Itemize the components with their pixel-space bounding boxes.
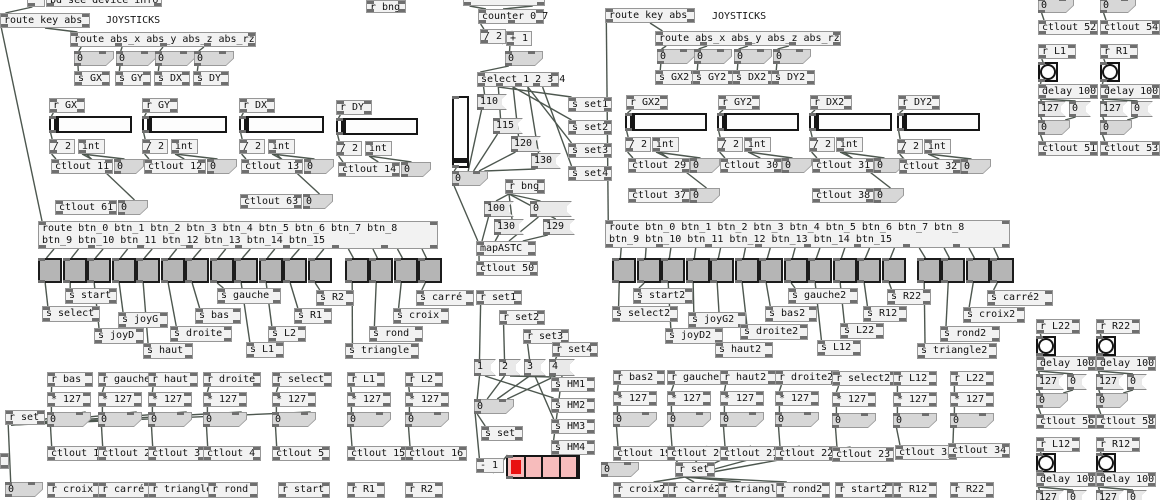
bang-button[interactable]: [1036, 336, 1056, 356]
port-nub: [710, 280, 717, 283]
port-nub: [441, 320, 448, 323]
number-box[interactable]: 0: [203, 412, 247, 427]
patch-cord: [510, 376, 554, 377]
number-value: 0: [406, 413, 448, 426]
port-nub: [273, 289, 280, 292]
toggle[interactable]: [161, 258, 185, 283]
patch-cord: [792, 248, 795, 258]
port-nub: [811, 96, 818, 99]
number-box[interactable]: 0: [734, 49, 772, 64]
toggle[interactable]: [686, 258, 710, 283]
toggle[interactable]: [759, 258, 783, 283]
toggle[interactable]: [710, 258, 734, 283]
bang-button[interactable]: [1100, 62, 1120, 82]
port-nub: [204, 403, 211, 406]
port-nub: [466, 302, 473, 305]
toggle[interactable]: [63, 258, 87, 283]
toggle[interactable]: [283, 258, 307, 283]
patch-cord: [779, 427, 780, 446]
toggle[interactable]: [882, 258, 906, 283]
message-0[interactable]: 0: [530, 201, 572, 217]
port-nub: [612, 280, 619, 283]
object-delay-100: delay 100: [1100, 84, 1160, 99]
patch-cord: [79, 47, 81, 51]
message-label: 0: [531, 202, 571, 216]
port-nub: [210, 258, 217, 261]
hradio-cell[interactable]: [526, 457, 544, 477]
port-nub: [1090, 152, 1097, 155]
slider-knob[interactable]: [722, 115, 727, 129]
send-set3: s set3: [568, 143, 612, 158]
toggle[interactable]: [833, 258, 857, 283]
receive-croix: r croix: [47, 482, 101, 498]
port-nub: [1002, 444, 1009, 447]
port-nub: [398, 1, 405, 4]
bang-circle: [1038, 338, 1054, 354]
port-nub: [986, 494, 993, 497]
port-nub: [92, 318, 99, 321]
horizontal-slider[interactable]: [142, 116, 227, 133]
port-nub: [430, 222, 437, 225]
port-nub: [240, 150, 247, 153]
port-nub: [531, 166, 538, 169]
port-nub: [537, 180, 544, 183]
number-box[interactable]: 0: [775, 412, 819, 427]
number-box[interactable]: 0: [601, 462, 639, 477]
port-nub: [868, 393, 875, 396]
port-nub: [479, 10, 486, 13]
port-nub: [240, 99, 247, 102]
toggle[interactable]: [941, 258, 965, 283]
object-ctlout-15: ctlout 15: [347, 446, 409, 461]
port-nub: [1100, 114, 1107, 117]
horizontal-slider[interactable]: [625, 113, 707, 131]
object-ctlout-5: ctlout 5: [272, 446, 330, 461]
port-nub: [899, 318, 906, 321]
port-nub: [155, 51, 162, 54]
port-nub: [234, 258, 241, 261]
number-box[interactable]: 0: [116, 51, 156, 66]
patch-cord: [778, 46, 789, 49]
object-127: * 127: [950, 392, 994, 407]
port-nub: [136, 340, 143, 343]
object-delay-100: delay 100: [1036, 472, 1096, 487]
port-nub: [733, 71, 740, 74]
port-nub: [1130, 45, 1137, 48]
port-nub: [833, 393, 840, 396]
object-ctlout-13: ctlout 13: [241, 159, 303, 174]
port-nub: [204, 383, 211, 386]
receive-r1: r R1: [347, 482, 385, 498]
horizontal-slider[interactable]: [717, 113, 799, 131]
toggle[interactable]: [808, 258, 832, 283]
port-nub: [885, 483, 892, 486]
port-nub: [194, 72, 201, 75]
port-nub: [1148, 483, 1155, 486]
toggle[interactable]: [234, 258, 258, 283]
port-nub: [1037, 415, 1044, 418]
patch-cord: [484, 169, 535, 171]
port-nub: [613, 424, 620, 427]
patch-cord: [1098, 371, 1133, 374]
number-box[interactable]: 0: [613, 412, 657, 427]
port-nub: [511, 136, 518, 139]
port-nub: [39, 222, 46, 225]
port-nub: [941, 280, 948, 283]
port-nub: [543, 219, 550, 222]
toggle[interactable]: [661, 258, 685, 283]
port-nub: [923, 301, 930, 304]
send-dy: s DY: [193, 71, 229, 86]
port-nub: [897, 113, 904, 116]
object-127: * 127: [405, 392, 449, 407]
object-ctlout-19: ctlout 19: [613, 446, 675, 461]
port-nub: [661, 280, 668, 283]
port-nub: [796, 49, 803, 52]
port-nub: [637, 280, 644, 283]
receive-bng: r bng: [366, 0, 406, 13]
port-nub: [210, 280, 217, 283]
port-nub: [304, 159, 311, 162]
port-nub: [929, 403, 936, 406]
hradio-cell[interactable]: [561, 457, 579, 477]
hradio-selector[interactable]: [506, 455, 580, 479]
number-box[interactable]: 0: [720, 412, 764, 427]
toggle[interactable]: [735, 258, 759, 283]
port-nub: [989, 355, 996, 358]
port-nub: [182, 72, 189, 75]
toggle[interactable]: [185, 258, 209, 283]
port-nub: [1090, 95, 1097, 98]
send-l1: s L1: [246, 342, 284, 358]
number-box[interactable]: 0: [667, 412, 711, 427]
port-nub: [707, 473, 714, 476]
patch-cord: [169, 249, 176, 258]
number-box[interactable]: 0: [74, 51, 114, 66]
port-nub: [925, 150, 932, 153]
toggle[interactable]: [418, 258, 442, 283]
port-nub: [218, 289, 225, 292]
send-triangle: s triangle: [345, 343, 419, 359]
number-value: 0: [273, 413, 315, 426]
port-nub: [686, 258, 693, 261]
port-nub: [464, 2, 471, 5]
toggle[interactable]: [990, 258, 1014, 283]
port-nub: [738, 313, 745, 316]
port-nub: [893, 413, 900, 416]
port-nub: [1097, 425, 1104, 428]
port-nub: [115, 43, 122, 46]
port-nub: [809, 128, 816, 131]
toggle[interactable]: [784, 258, 808, 283]
port-nub: [720, 424, 727, 427]
port-nub: [478, 73, 485, 76]
slider-knob[interactable]: [902, 115, 907, 129]
port-nub: [170, 99, 177, 102]
number-box[interactable]: 0: [148, 412, 192, 427]
object-ctlout-3: ctlout 3: [148, 446, 206, 461]
port-nub: [119, 313, 126, 316]
port-nub: [143, 99, 150, 102]
patch-cord: [160, 47, 163, 51]
port-nub: [317, 302, 324, 305]
port-nub: [776, 381, 783, 384]
toggle[interactable]: [345, 258, 369, 283]
number-box[interactable]: 0: [155, 51, 195, 66]
port-nub: [689, 324, 696, 327]
object-ctlout-1: ctlout 1: [47, 446, 105, 461]
port-nub: [1090, 142, 1097, 145]
port-nub: [989, 344, 996, 347]
port-nub: [221, 82, 228, 85]
number-box[interactable]: 0: [347, 412, 391, 427]
send-set4: s set4: [568, 166, 612, 181]
port-nub: [370, 327, 377, 330]
object-127: * 127: [203, 392, 247, 407]
port-nub: [755, 244, 762, 247]
port-nub: [190, 373, 197, 376]
receive-r12: r R12: [1096, 437, 1140, 452]
send-l22: s L22: [840, 323, 884, 339]
bang-button[interactable]: [1038, 62, 1058, 82]
number-box[interactable]: 0: [474, 399, 514, 414]
object-ctlout-52: ctlout 52: [1038, 20, 1098, 35]
slider-knob[interactable]: [454, 158, 467, 163]
send-select: s select: [42, 306, 100, 322]
toggle[interactable]: [637, 258, 661, 283]
port-nub: [224, 338, 231, 341]
port-nub: [896, 446, 903, 449]
number-box[interactable]: 0: [98, 412, 142, 427]
hradio-cell[interactable]: [508, 457, 526, 477]
port-nub: [1037, 473, 1044, 476]
horizontal-slider[interactable]: [336, 118, 418, 135]
receive-dx: r DX: [239, 98, 275, 113]
port-nub: [808, 258, 815, 261]
port-nub: [272, 424, 279, 427]
port-nub: [832, 413, 839, 416]
port-nub: [1148, 473, 1155, 476]
object-ctlout-31: ctlout 31: [812, 158, 874, 173]
port-nub: [551, 83, 558, 86]
toggle[interactable]: [612, 258, 636, 283]
toggle[interactable]: [857, 258, 881, 283]
patch-cord: [1039, 390, 1040, 393]
port-nub: [687, 9, 694, 12]
port-nub: [345, 280, 352, 283]
port-nub: [143, 150, 150, 153]
port-nub: [811, 106, 818, 109]
port-nub: [777, 483, 784, 486]
patch-cord: [693, 283, 694, 312]
port-nub: [893, 425, 900, 428]
number-box[interactable]: 0: [832, 413, 876, 428]
port-nub: [656, 42, 663, 45]
receive-bas: r bas: [47, 372, 93, 387]
number-box[interactable]: 0: [405, 412, 449, 427]
number-value: 0: [833, 414, 875, 427]
receive-start: r start: [278, 482, 330, 498]
port-nub: [807, 81, 814, 84]
bang-button[interactable]: [1036, 453, 1056, 473]
number-box[interactable]: 0: [773, 49, 811, 64]
port-nub: [888, 301, 895, 304]
toggle[interactable]: [38, 258, 62, 283]
port-nub: [818, 352, 825, 355]
port-nub: [1127, 490, 1134, 493]
port-nub: [716, 354, 723, 357]
port-nub: [48, 403, 55, 406]
number-box[interactable]: 0: [694, 49, 732, 64]
port-nub: [348, 403, 355, 406]
port-nub: [149, 403, 156, 406]
patch-cord: [899, 131, 900, 139]
port-nub: [569, 154, 576, 157]
port-nub: [718, 148, 725, 151]
port-nub: [219, 51, 226, 54]
toggle[interactable]: [259, 258, 283, 283]
slider-knob[interactable]: [630, 115, 635, 129]
port-nub: [756, 392, 763, 395]
port-nub: [48, 457, 55, 460]
port-nub: [171, 338, 178, 341]
number-box[interactable]: 0: [893, 413, 937, 428]
object-2: / 2: [336, 141, 362, 156]
port-nub: [406, 393, 413, 396]
port-nub: [1036, 405, 1043, 408]
receive-dy: r DY: [336, 100, 372, 115]
port-nub: [348, 383, 355, 386]
port-nub: [5, 494, 12, 497]
port-nub: [279, 494, 286, 497]
port-nub: [242, 170, 249, 173]
receive-dy2: r DY2: [898, 95, 940, 110]
port-nub: [370, 338, 377, 341]
port-nub: [269, 140, 276, 143]
object-route-btn-0-btn-1-btn-2-btn-3-bt: route btn_0 btn_1 btn_2 btn_3 btn_4 btn_…: [38, 221, 438, 249]
receive-l2: r L2: [405, 372, 443, 387]
number-box[interactable]: 0: [194, 51, 234, 66]
toggle[interactable]: [112, 258, 136, 283]
port-nub: [717, 113, 724, 116]
number-box[interactable]: 0: [950, 413, 994, 428]
toggle[interactable]: [394, 258, 418, 283]
number-value: 0: [894, 414, 936, 427]
port-nub: [109, 300, 116, 303]
port-nub: [1036, 374, 1043, 377]
port-nub: [604, 167, 611, 170]
port-nub: [149, 373, 156, 376]
hradio-cell[interactable]: [543, 457, 561, 477]
port-nub: [668, 371, 675, 374]
send-start: s start: [65, 288, 117, 304]
port-nub: [1036, 393, 1043, 396]
bang-button[interactable]: [1096, 336, 1116, 356]
patch-cord: [513, 87, 571, 120]
port-nub: [1038, 62, 1045, 65]
object-route-abs-x-abs-y-abs-z-abs-rz: route abs_x abs_y abs_z abs_rz: [655, 31, 841, 46]
toggle[interactable]: [136, 258, 160, 283]
port-nub: [689, 313, 696, 316]
port-nub: [37, 411, 44, 414]
patch-cord: [865, 248, 869, 258]
port-nub: [37, 421, 44, 424]
port-nub: [50, 99, 57, 102]
send-droite2: s droite2: [740, 324, 808, 340]
port-nub: [48, 447, 55, 450]
port-nub: [474, 399, 481, 402]
port-nub: [543, 232, 550, 235]
port-nub: [1037, 357, 1044, 360]
port-nub: [303, 194, 310, 197]
port-nub: [853, 341, 860, 344]
port-nub: [95, 329, 102, 332]
port-nub: [276, 354, 283, 357]
port-nub: [406, 383, 413, 386]
send-haut: s haut: [143, 343, 193, 359]
vertical-slider[interactable]: [452, 96, 469, 168]
port-nub: [221, 72, 228, 75]
number-box[interactable]: 0: [657, 49, 695, 64]
port-nub: [789, 289, 796, 292]
port-nub: [99, 51, 106, 54]
number-box[interactable]: 0: [272, 412, 316, 427]
slider-knob[interactable]: [814, 115, 819, 129]
port-nub: [774, 169, 781, 172]
toggle[interactable]: [210, 258, 234, 283]
port-nub: [406, 373, 413, 376]
patch-cord: [694, 248, 695, 258]
toggle[interactable]: [966, 258, 990, 283]
port-nub: [950, 425, 957, 428]
toggle[interactable]: [87, 258, 111, 283]
port-nub: [741, 336, 748, 339]
patch-cord: [619, 283, 620, 306]
patch-cord: [1104, 13, 1106, 20]
horizontal-slider[interactable]: [49, 116, 132, 133]
send-rond2: s rond2: [940, 326, 1000, 342]
port-nub: [1002, 244, 1009, 247]
number-box[interactable]: 0: [505, 51, 543, 66]
port-nub: [127, 412, 134, 415]
number-box[interactable]: 0: [5, 482, 43, 497]
port-nub: [874, 158, 881, 161]
port-nub: [1100, 132, 1107, 135]
port-nub: [953, 160, 960, 163]
object-ctlout-14: ctlout 14: [338, 162, 400, 177]
bang-button[interactable]: [1096, 453, 1116, 473]
object-route-btn-0-btn-1-btn-2-btn-3-bt: route btn_0 btn_1 btn_2 btn_3 btn_4 btn_…: [605, 220, 1010, 248]
port-nub: [682, 159, 689, 162]
port-nub: [484, 201, 491, 204]
toggle[interactable]: [917, 258, 941, 283]
number-box[interactable]: 0: [47, 412, 91, 427]
horizontal-slider[interactable]: [897, 113, 980, 131]
port-nub: [656, 71, 663, 74]
horizontal-slider[interactable]: [239, 116, 324, 133]
port-nub: [735, 258, 742, 261]
horizontal-slider[interactable]: [809, 113, 892, 131]
port-nub: [415, 327, 422, 330]
toggle[interactable]: [308, 258, 332, 283]
port-nub: [533, 83, 540, 86]
port-nub: [515, 437, 522, 440]
toggle[interactable]: [369, 258, 393, 283]
port-nub: [1045, 302, 1052, 305]
number-value: 0: [668, 413, 710, 426]
send-bas2: s bas2: [765, 306, 817, 322]
patch-cord: [46, 249, 54, 258]
